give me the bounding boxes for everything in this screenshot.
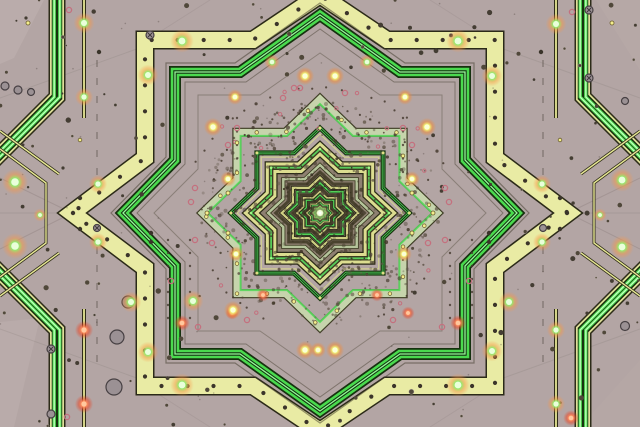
green-glow-dot — [11, 178, 19, 186]
green-glow-dot — [598, 213, 602, 217]
yellow-glow-dot — [316, 348, 321, 353]
green-glow-dot — [489, 348, 495, 354]
yellow-glow-dot — [332, 347, 337, 352]
green-glow-dot — [81, 20, 87, 26]
green-glow-dot — [128, 299, 134, 305]
gray-circle-dot — [622, 98, 629, 105]
yellow-ring-dot — [431, 211, 435, 215]
yellow-glow-dot — [230, 307, 235, 312]
green-glow-dot — [619, 244, 626, 251]
green-glow-dot — [506, 299, 512, 305]
yellow-glow-dot — [403, 95, 408, 100]
green-glow-dot — [455, 38, 462, 45]
green-glow-dot — [95, 239, 100, 244]
yellow-ring-dot — [205, 211, 209, 215]
red-glow-dot — [81, 327, 86, 332]
green-glow-dot — [11, 242, 19, 250]
green-glow-dot — [38, 213, 42, 217]
yellow-glow-dot — [410, 177, 415, 182]
green-glow-dot — [489, 73, 495, 79]
green-glow-dot — [270, 60, 275, 65]
green-glow-dot — [95, 181, 100, 186]
red-glow-dot — [375, 293, 379, 297]
yellow-glow-dot — [424, 124, 429, 129]
yellow-ring-dot — [226, 191, 230, 195]
yellow-glow-dot — [402, 252, 407, 257]
green-glow-dot — [539, 239, 544, 244]
yellow-ring-dot — [78, 138, 82, 142]
kaleidoscope-image — [0, 0, 640, 427]
gray-circle-dot — [1, 82, 9, 90]
gray-circle-dot — [14, 86, 22, 94]
gray-circle-dot — [110, 330, 124, 344]
green-glow-dot — [190, 298, 196, 304]
green-glow-dot — [619, 177, 626, 184]
red-glow-dot — [406, 311, 410, 315]
red-glow-dot — [456, 321, 461, 326]
yellow-ring-dot — [410, 231, 414, 235]
red-glow-dot — [569, 416, 574, 421]
green-glow-dot — [179, 382, 186, 389]
yellow-ring-dot — [410, 191, 414, 195]
kaleidoscope-canvas — [0, 0, 640, 427]
green-glow-dot — [553, 327, 558, 332]
yellow-ring-dot — [26, 21, 30, 25]
green-glow-dot — [179, 38, 186, 45]
red-glow-dot — [261, 293, 265, 297]
red-glow-dot — [180, 321, 185, 326]
green-glow-dot — [365, 60, 370, 65]
red-glow-dot — [81, 401, 86, 406]
yellow-ring-dot — [558, 138, 562, 142]
gray-circle-dot — [621, 322, 630, 331]
gray-circle-dot — [28, 89, 35, 96]
yellow-glow-dot — [302, 347, 307, 352]
green-glow-dot — [539, 181, 544, 186]
yellow-glow-dot — [302, 73, 307, 78]
yellow-glow-dot — [234, 252, 239, 257]
yellow-ring-dot — [610, 21, 614, 25]
green-glow-dot — [553, 21, 559, 27]
center-glow — [310, 203, 330, 223]
green-glow-dot — [553, 401, 558, 406]
green-glow-dot — [81, 94, 86, 99]
yellow-glow-dot — [233, 95, 238, 100]
green-glow-dot — [145, 72, 151, 78]
green-glow-dot — [145, 349, 151, 355]
yellow-glow-dot — [332, 73, 337, 78]
gray-circle-dot — [106, 379, 122, 395]
green-glow-dot — [455, 382, 462, 389]
yellow-glow-dot — [210, 124, 215, 129]
yellow-glow-dot — [226, 177, 231, 182]
gray-circle-dot — [47, 410, 55, 418]
gray-circle-dot — [540, 225, 547, 232]
yellow-ring-dot — [226, 231, 230, 235]
